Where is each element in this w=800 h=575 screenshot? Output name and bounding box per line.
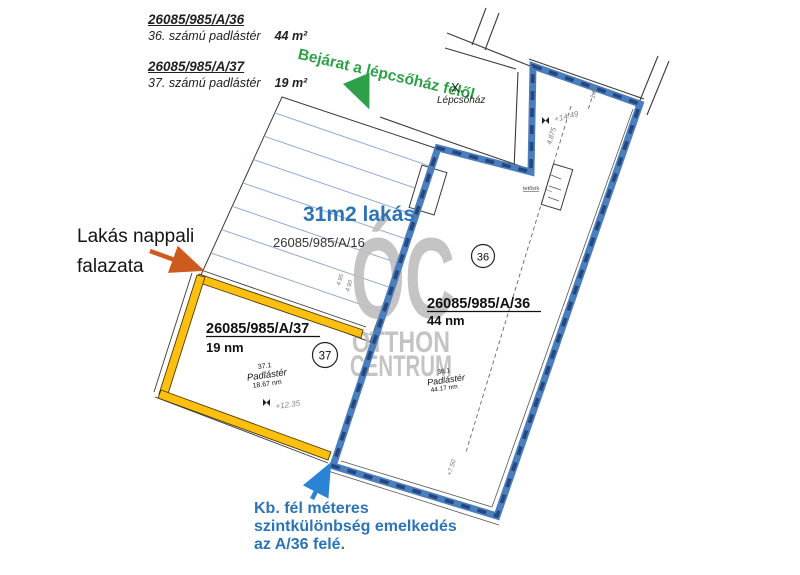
wall-note-line1: Lakás nappali (77, 222, 194, 252)
svg-text:+12.35: +12.35 (275, 399, 301, 411)
svg-text:37: 37 (319, 351, 332, 363)
svg-text:19 nm: 19 nm (206, 340, 244, 355)
staircase-label: Lépcsőház (437, 95, 485, 106)
level-mark-37 (263, 399, 270, 406)
skylight-label: tetősík (523, 186, 539, 192)
floor-plan-page: tetősík ÓC OTTHON CENTRUM (0, 0, 800, 575)
legend-area-37: 19 m² (275, 76, 308, 90)
legend-desc-37: 37. számú padlástér (148, 76, 261, 90)
legend-item-36: 26085/985/A/36 36. számú padlástér 44 m² (148, 12, 378, 43)
svg-text:44 nm: 44 nm (427, 313, 465, 328)
level-arrow-icon (312, 472, 326, 499)
svg-text:36: 36 (477, 252, 489, 264)
apartment-title: 31m2 lakás (303, 203, 415, 227)
staircase-number: X. (451, 80, 463, 95)
svg-text:26085/985/A/37: 26085/985/A/37 (206, 321, 309, 337)
level-difference-note: Kb. fél méteres szintkülönbség emelkedés… (254, 500, 457, 554)
level-note-line1: Kb. fél méteres (254, 500, 457, 518)
level-note-line3: az A/36 felé. (254, 536, 457, 554)
unit37-labels: 26085/985/A/37 19 nm 37.1 Padlástér 18.6… (206, 321, 320, 411)
svg-text:26085/985/A/36: 26085/985/A/36 (427, 296, 530, 312)
unit36-circle-number: 36 (472, 245, 495, 268)
legend-desc-36: 36. számú padlástér (148, 29, 261, 43)
legend-parcel-36: 26085/985/A/36 (148, 12, 378, 27)
legend-area-36: 44 m² (275, 29, 308, 43)
wall-note: Lakás nappali falazata (77, 222, 194, 282)
unit37-circle-number: 37 (313, 343, 338, 368)
apartment-parcel: 26085/985/A/16 (273, 235, 365, 250)
wall-note-line2: falazata (77, 252, 194, 282)
level-note-line2: szintkülönbség emelkedés (254, 518, 457, 536)
